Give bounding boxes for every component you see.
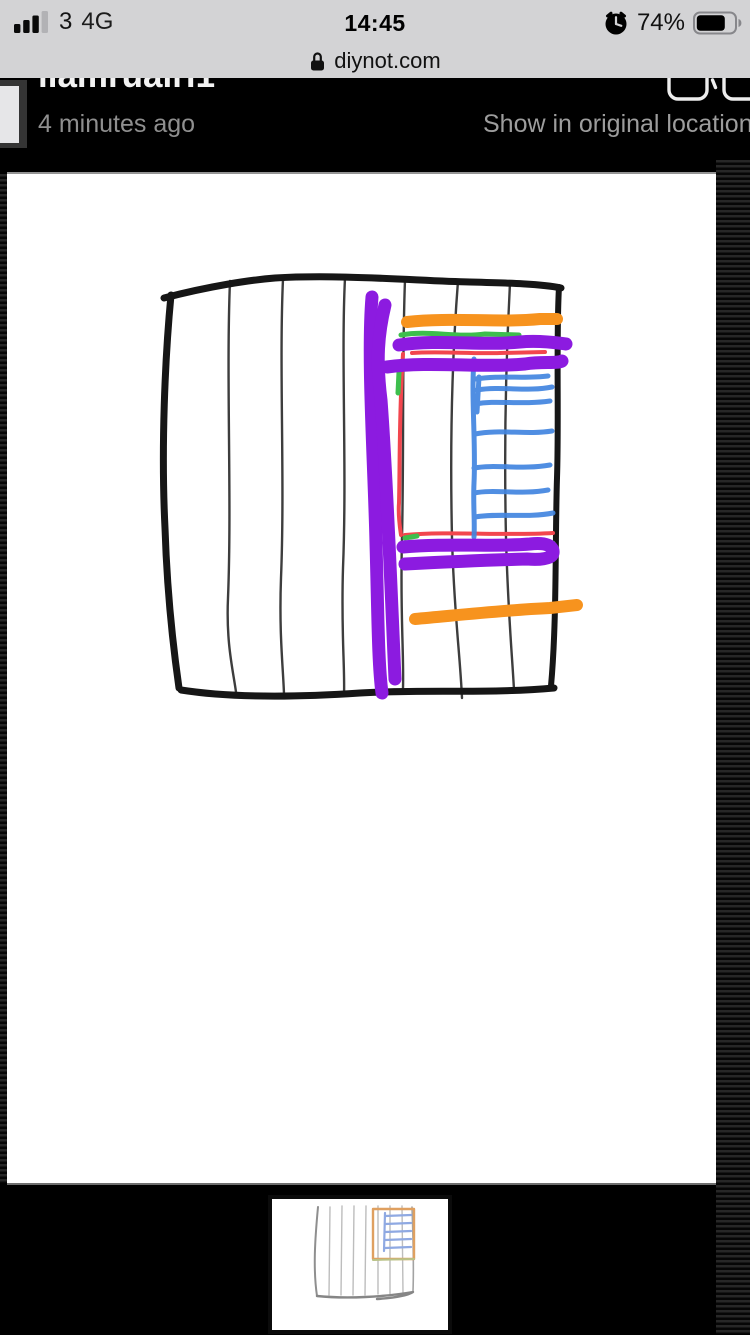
status-bar: 3 4G 14:45 74% diynot.com (0, 0, 750, 78)
timestamp-label: 4 minutes ago (38, 110, 195, 139)
lightbox-header: liamruairi1 4 minutes ago Show in origin… (0, 78, 750, 160)
battery-icon (693, 11, 742, 35)
action-tick-icon (713, 80, 716, 88)
signal-strength-icon (14, 11, 50, 33)
lightbox-photo[interactable] (7, 172, 716, 1185)
network-type-label: 4G (81, 8, 113, 36)
status-left-cluster: 3 4G (14, 8, 113, 36)
video-letterbox-right (716, 160, 750, 1334)
thumbnail-sketch-preview (272, 1199, 448, 1330)
previous-image-preview (0, 86, 19, 143)
show-original-link[interactable]: Show in original location (483, 110, 750, 139)
url-domain-label: diynot.com (334, 48, 440, 74)
carrier-label: 3 (59, 8, 72, 36)
battery-percent-label: 74% (637, 9, 685, 37)
blue-marker-strokes (473, 359, 553, 537)
secondary-action-icon (724, 78, 750, 99)
annotated-fence-sketch (7, 174, 716, 1179)
alarm-clock-icon (603, 10, 629, 36)
lock-icon (309, 51, 326, 72)
iphone-safari-screen: { "status_bar": { "carrier": "3", "netwo… (0, 0, 750, 1334)
header-action-icons[interactable] (667, 78, 750, 104)
video-letterbox-left (0, 174, 7, 1183)
previous-image-thumbnail[interactable] (0, 80, 27, 148)
share-icon (669, 78, 707, 99)
image-carousel-thumbnail[interactable] (268, 1195, 452, 1334)
status-right-cluster: 74% (603, 9, 742, 37)
address-bar[interactable]: diynot.com (0, 46, 750, 76)
username-label: liamruairi1 (38, 78, 215, 96)
